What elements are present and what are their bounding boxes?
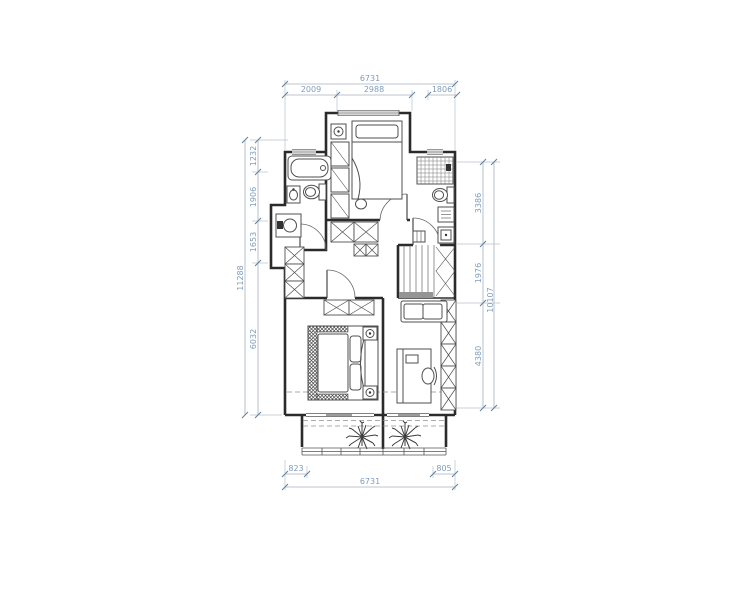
balcony-window-band: [302, 448, 446, 455]
dim-right-seg3: 4380: [474, 346, 483, 366]
shower: [417, 157, 453, 184]
window-top-bedroom: [338, 110, 399, 116]
window-right-bathroom: [427, 149, 443, 155]
furniture-layer: [276, 121, 456, 449]
sink: [287, 186, 300, 203]
hall-cabinet-left: [285, 247, 304, 298]
dim-right-total: 10107: [486, 287, 495, 312]
plant-icon: [389, 421, 421, 449]
dim-left-seg1: 1232: [249, 146, 258, 166]
nightstand-bottom: [363, 386, 377, 399]
dim-bottom-left: 823: [288, 464, 303, 473]
bathtub: [288, 156, 331, 180]
dim-top-seg1: 2009: [301, 85, 321, 94]
sliding-door-study: [387, 414, 429, 417]
dimension-bottom: 823 805 6731: [282, 460, 458, 490]
dim-top-seg2: 2988: [364, 85, 384, 94]
master-wardrobe: [324, 300, 374, 315]
dim-top-total: 6731: [360, 74, 380, 83]
dim-right-seg1: 3386: [474, 193, 483, 213]
toilet-right: [433, 187, 455, 203]
plant-icon: [346, 421, 378, 449]
bed-top-bedroom: [352, 121, 402, 209]
dim-bottom-right: 805: [436, 464, 451, 473]
bath-cabinet: [438, 207, 454, 243]
sliding-door-master: [306, 414, 374, 417]
door-master-bedroom: [327, 270, 355, 298]
dim-right-seg2: 1976: [474, 263, 483, 283]
dim-left-seg3: 1653: [249, 232, 258, 252]
dimension-right: 3386 1976 4380 10107: [457, 159, 500, 411]
dim-left-total: 11288: [236, 265, 245, 290]
washing-machine: [276, 214, 301, 237]
window-left-bathroom: [292, 149, 316, 155]
hall-closet-row: [331, 222, 378, 256]
door-left-bathroom: [300, 224, 326, 250]
nightstand-top: [363, 327, 377, 340]
dim-bottom-total: 6731: [360, 477, 380, 486]
toilet: [304, 184, 327, 200]
dim-left-seg2: 1906: [249, 187, 258, 207]
dim-left-seg4: 6032: [249, 329, 258, 349]
floor-plan-canvas: 6731 2009 2988 1806 11288: [0, 0, 740, 600]
tall-cabinet: [331, 142, 349, 218]
dim-top-seg3: 1806: [432, 85, 452, 94]
dimension-left: 11288 1232 1906 1653 6032: [236, 137, 288, 418]
sofa: [401, 301, 447, 322]
office-chair: [422, 367, 437, 385]
ceiling-lamp: [331, 124, 346, 139]
